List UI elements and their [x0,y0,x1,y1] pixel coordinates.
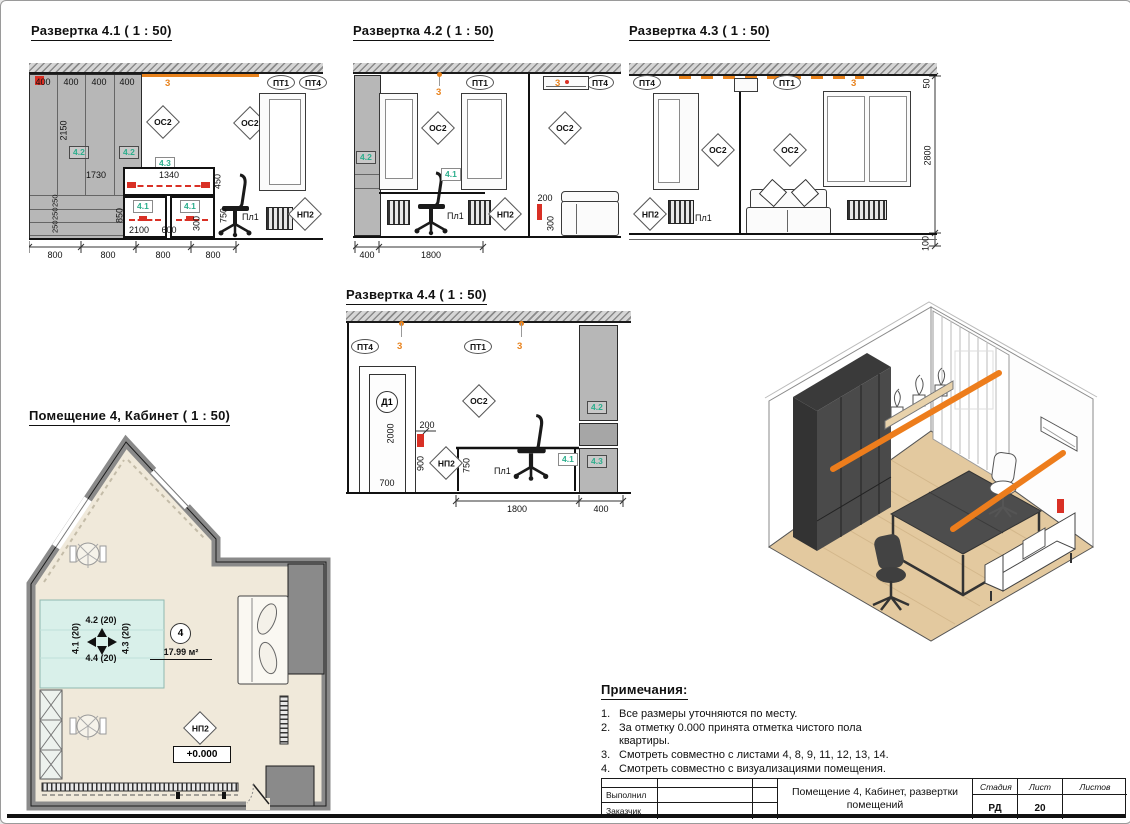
socket [139,216,147,221]
sofa-seat [746,207,831,235]
floor-line [629,233,937,235]
window [259,93,306,191]
cabinet-shelf [579,423,618,446]
room-area: 17.99 м² [150,648,212,660]
window [379,93,418,190]
nav-arrow-down-icon [97,646,107,655]
title-block: Выполнил Заказчик Помещение 4, Кабинет, … [601,778,1126,818]
floor-mark-pl1: Пл1 [494,467,511,476]
dim-50: 50 [923,74,932,94]
sheets-label: Листов [1070,783,1120,792]
led-leader [521,323,522,337]
radiator [266,207,293,230]
note-number: 3. [601,749,619,762]
floor-plan-title: Помещение 4, Кабинет ( 1 : 50) [29,408,230,426]
document-title: Помещение 4, Кабинет, развертки помещени… [780,779,970,819]
desk-top [379,192,485,194]
drawing-sheet: Развертка 4.1 ( 1 : 50) 3 [0,0,1130,824]
nav-arrow-left-icon [87,637,96,647]
furniture-tag-4-1: 4.1 [133,200,153,213]
led-leader [401,323,402,337]
switch-3d [1057,499,1064,513]
note-number: 2. [601,722,619,748]
switch [417,434,424,447]
nav-arrow-right-icon [108,637,117,647]
dim-400: 400 [31,78,55,87]
sheet-border-bottom [7,814,1125,818]
ceiling-mark-pt4: ПТ4 [633,75,661,90]
furniture-tag-4-2: 4.2 [356,151,376,164]
office-chair [514,416,549,481]
led-dot [437,72,442,77]
furniture-tag-4-1: 4.1 [558,453,578,466]
floor-mark-pl1: Пл1 [242,213,259,222]
ceiling-hatch [29,63,323,74]
sofa-seat [561,201,619,236]
dim-1800: 1800 [408,251,454,260]
notes-title: Примечания: [601,682,688,700]
elevation-4-1-title: Развертка 4.1 ( 1 : 50) [31,23,172,41]
led-callout: 3 [517,342,522,352]
wall-edge [347,323,349,493]
desk-top-view [40,600,164,688]
dim-100: 100 [922,233,931,255]
ceiling-mark-pt1: ПТ1 [773,75,801,90]
furniture-tag-4-2: 4.2 [119,146,139,159]
floor-line [353,236,621,238]
note-item: 3. Смотреть совместно с листами 4, 8, 9,… [601,749,971,762]
ceiling-hatch [346,311,631,323]
furniture-tag-4-2: 4.2 [69,146,89,159]
wall-shaft [288,564,324,674]
elevation-4-2: 3 ПТ1 ПТ4 3 4.2 4.1 ОС2 ОС2 Пл1 НП2 200 … [353,61,621,261]
air-conditioner [734,78,758,92]
floor-line [29,238,323,240]
dim-1800: 1800 [497,505,537,514]
elevation-4-3: ПТ4 ПТ1 3 ОС2 ОС2 НП2 Пл1 50 2800 100 [629,61,943,261]
ceiling-hatch [353,63,621,74]
furniture-tag-4-3: 4.3 [587,455,607,468]
led-callout: 3 [436,88,441,98]
elevation-4-4-title: Развертка 4.4 ( 1 : 50) [346,287,487,305]
window [653,93,699,190]
stage-value: РД [975,804,1015,814]
furniture-tag-4-1: 4.1 [441,168,461,181]
led-callout: 3 [397,342,402,352]
radiator [847,200,887,220]
led-strip-dashed [679,76,864,79]
dim-450: 450 [214,171,223,193]
notes-block: Примечания: 1. Все размеры уточняются по… [601,681,971,777]
dim-400: 400 [355,251,379,260]
dim-900: 900 [417,453,426,475]
led-callout: 3 [555,79,560,89]
sofa-top-view [238,596,288,684]
entry-wall-block [266,766,314,806]
floor-line [346,492,631,494]
note-item: 1. Все размеры уточняются по месту. [601,708,971,721]
sheet-value: 20 [1020,804,1060,814]
skirting-line [629,239,937,240]
note-text: Смотреть совместно с листами 4, 8, 9, 11… [619,749,954,762]
note-text: Все размеры уточняются по месту. [619,708,954,721]
wall-corner [739,92,741,233]
dim-300: 300 [193,214,202,234]
floor-plan: 4.2 (20) 4.1 (20) 4.3 (20) 4.4 (20) 4 17… [26,434,338,816]
dim-1730: 1730 [81,171,111,180]
socket-line [128,185,210,187]
note-number: 1. [601,708,619,721]
dim-300: 300 [547,214,556,234]
switch [537,204,542,220]
wardrobe-top-view [40,690,62,779]
dim-200: 200 [533,194,557,203]
dim-1340: 1340 [151,171,187,180]
dim-800: 800 [143,251,183,260]
dim-700: 700 [374,479,400,488]
ceiling-mark-pt4: ПТ4 [299,75,327,90]
stage-label: Стадия [980,783,1010,792]
socket [201,182,210,188]
dim-800: 800 [193,251,233,260]
dim-800: 800 [88,251,128,260]
dim-250: 250 [51,219,59,235]
executed-by-label: Выполнил [606,791,646,800]
radiator [387,200,410,225]
note-number: 4. [601,763,619,776]
isometric-view [741,289,1126,679]
floor-mark-pl1: Пл1 [447,212,464,221]
elevation-nav-down: 4.4 (20) [71,654,131,663]
elevation-4-2-title: Развертка 4.2 ( 1 : 50) [353,23,494,41]
ceiling-mark-pt4: ПТ4 [351,339,379,354]
socket [127,182,136,188]
dim-400: 400 [115,78,139,87]
furniture-tag-4-1: 4.1 [180,200,200,213]
radiator [668,200,694,224]
ceiling-mark-pt1: ПТ1 [464,339,492,354]
note-item: 4. Смотреть совместно с визуализациями п… [601,763,971,776]
dim-2800: 2800 [924,143,933,169]
dim-800: 800 [35,251,75,260]
note-text: Смотреть совместно с визуализациями поме… [619,763,954,776]
window-double [823,91,911,187]
ceiling-mark-pt1: ПТ1 [267,75,295,90]
dim-400: 400 [59,78,83,87]
elevation-4-3-title: Развертка 4.3 ( 1 : 50) [629,23,770,41]
sheet-label: Лист [1025,783,1055,792]
dim-400: 400 [87,78,111,87]
wall-corner [528,74,530,236]
dim-850: 850 [116,205,125,227]
office-chair [415,173,448,235]
door-mark-d1: Д1 [376,391,398,413]
room-number-badge: 4 [170,623,191,644]
ceiling-mark-pt4: ПТ4 [586,75,614,90]
socket-mark [222,792,226,799]
led-callout: 3 [165,79,170,89]
floor-level-mark: +0.000 [173,746,231,763]
ac-point [565,80,569,84]
socket-mark [176,792,180,799]
dim-750: 750 [463,455,472,477]
window [461,93,507,190]
elevation-4-1: 3 400 400 400 400 2150 250 250 250 4.2 4… [29,61,323,261]
elevation-4-4: ПТ4 3 ПТ1 3 Д1 2000 700 200 900 НП2 ОС2 … [346,311,631,513]
dim-2100: 2100 [125,226,153,235]
note-text: За отметку 0.000 принята отметка чистого… [619,722,899,748]
ceiling-mark-pt1: ПТ1 [466,75,494,90]
dim-2000: 2000 [387,421,396,447]
note-item: 2. За отметку 0.000 принята отметка чист… [601,722,971,748]
furniture-tag-4-2: 4.2 [587,401,607,414]
dim-400: 400 [581,505,621,514]
nav-arrow-up-icon [97,628,107,637]
led-callout: 3 [851,79,856,89]
ceiling-hatch [629,63,937,76]
dim-600: 600 [157,226,181,235]
dim-2150: 2150 [60,118,69,144]
dim-750: 750 [220,205,229,227]
dim-200: 200 [414,421,440,430]
floor-mark-pl1: Пл1 [695,214,712,223]
radiator-right [280,696,288,744]
